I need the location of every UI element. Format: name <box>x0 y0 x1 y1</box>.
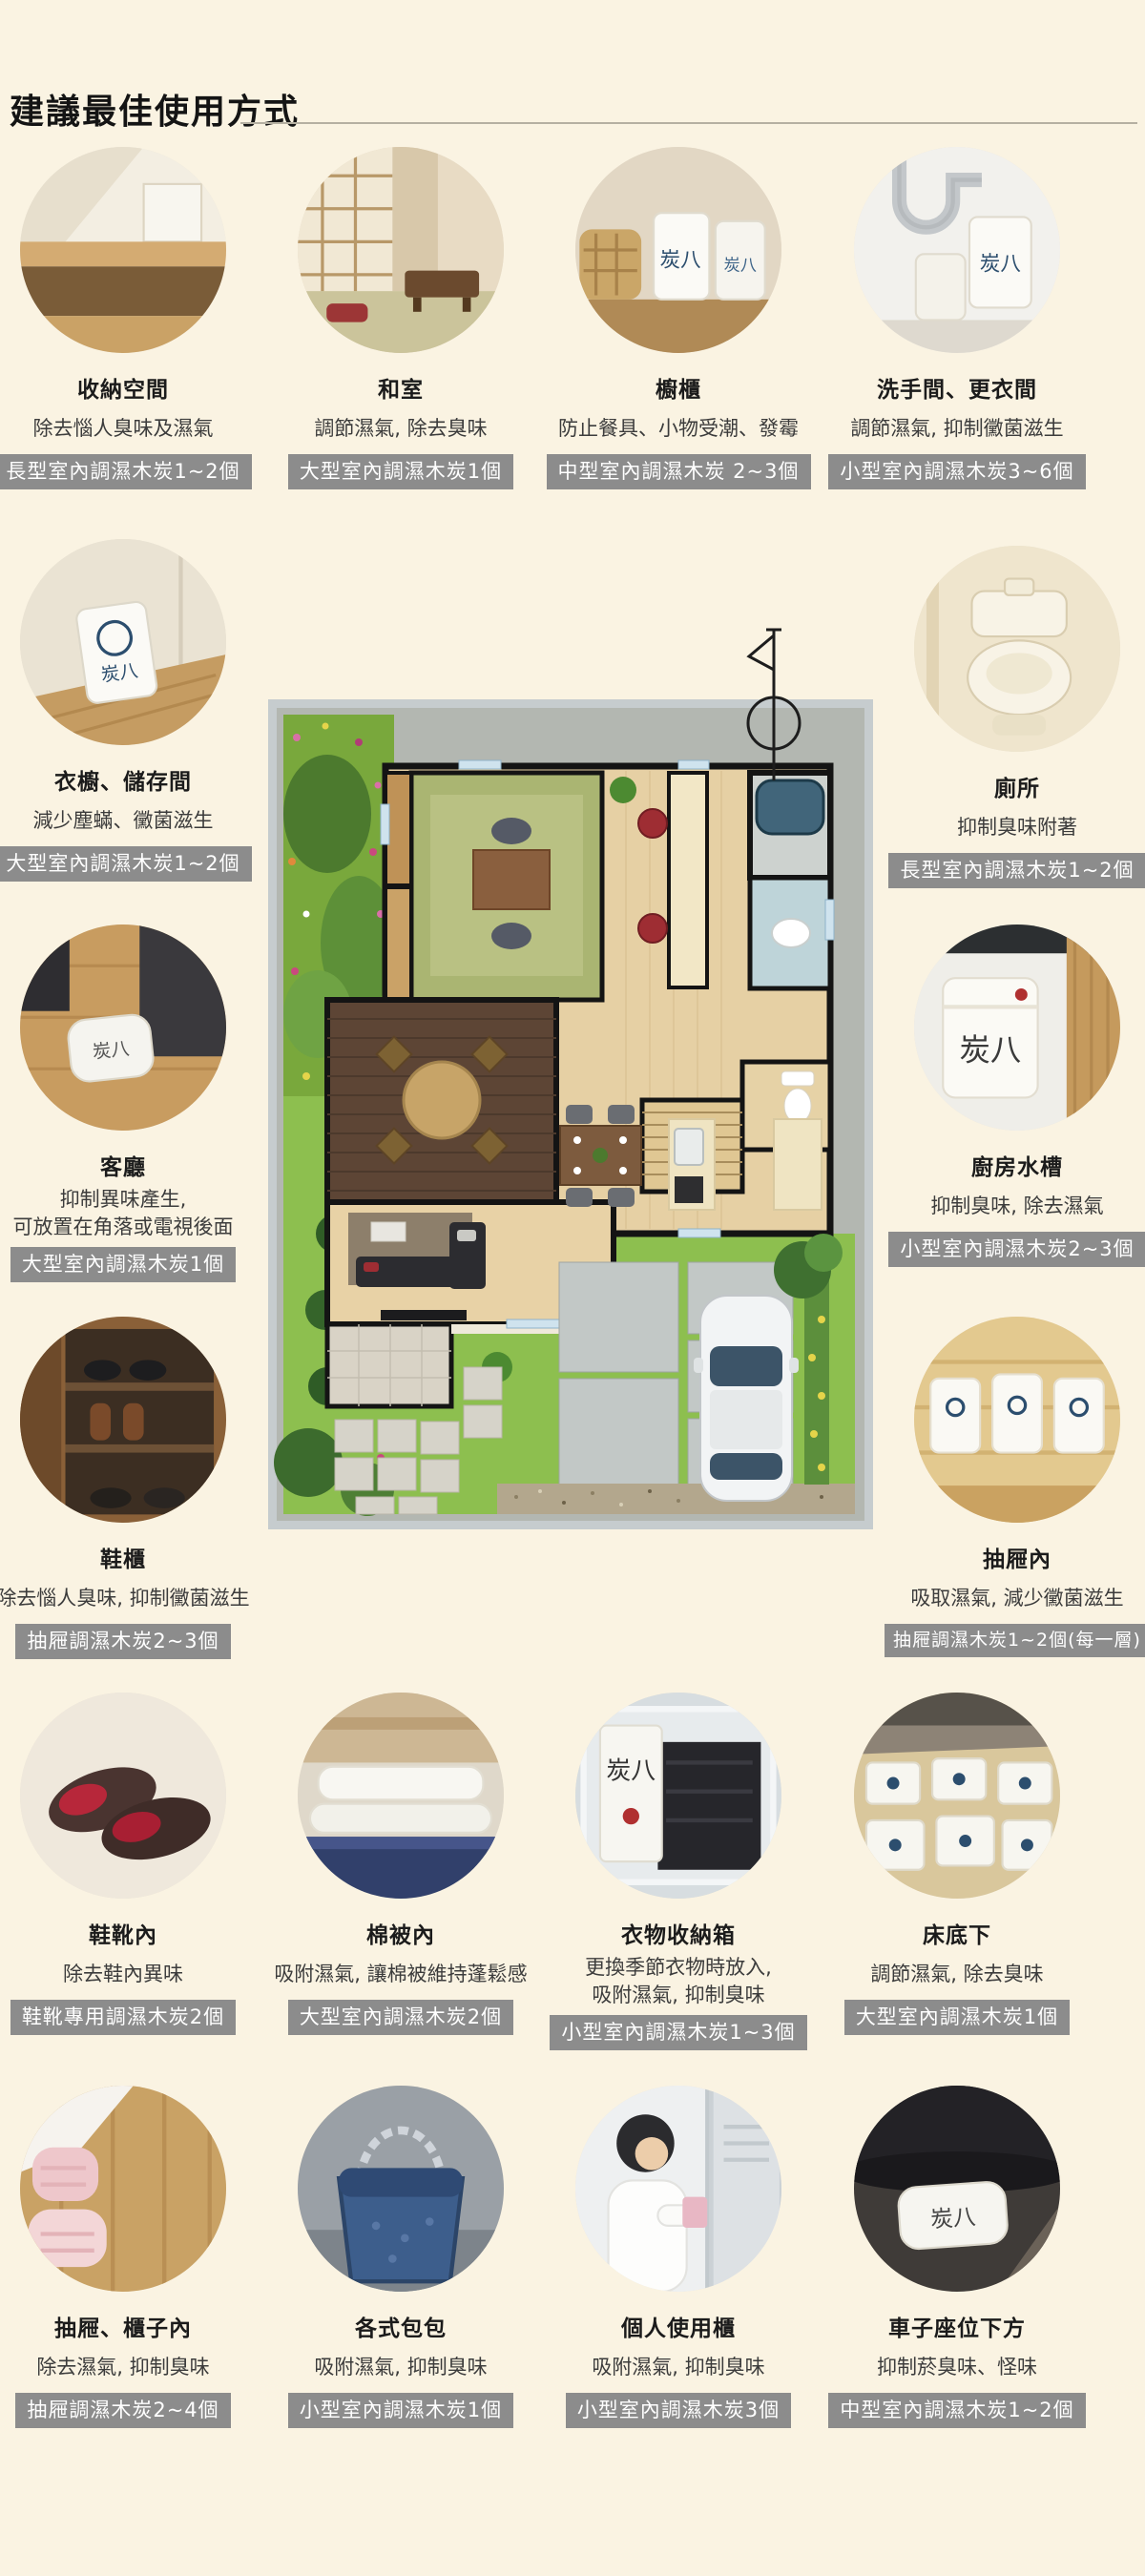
item-badge: 大型室內調濕木炭1個 <box>10 1247 236 1282</box>
charcoal-bag-label: 炭八 <box>606 1757 656 1786</box>
page-title: 建議最佳使用方式 <box>10 84 300 134</box>
item-badge: 小型室內調濕木炭3~6個 <box>828 454 1085 489</box>
item-desc: 調節濕氣, 抑制黴菌滋生 <box>804 414 1110 443</box>
usage-item-living-room: 炭八 客廳 抑制異味產生, 可放置在角落或電視後面 大型室內調濕木炭1個 <box>0 924 276 1282</box>
usage-item-washitsu: 和室 調節濕氣, 除去臭味 大型室內調濕木炭1個 <box>248 147 553 489</box>
charcoal-bag-label: 炭八 <box>660 248 701 272</box>
item-title: 抽屜內 <box>864 1546 1145 1574</box>
wardrobe-bag-illustration: 炭八 <box>20 539 226 745</box>
bags-photo <box>298 2086 504 2292</box>
wardrobe-photo: 炭八 <box>20 539 226 745</box>
cupboard-illustration: 炭八 炭八 <box>575 147 781 353</box>
closet-shelf-illustration <box>20 147 226 353</box>
car-seat-photo: 炭八 <box>854 2086 1060 2292</box>
under-sink-pipes-illustration: 炭八 <box>854 147 1060 353</box>
toilet-illustration <box>914 546 1120 752</box>
usage-item-storage-space: 收納空間 除去惱人臭味及濕氣 長型室內調濕木炭1~2個 <box>0 147 276 489</box>
item-desc: 吸附濕氣, 抑制臭味 <box>248 2353 553 2381</box>
item-badge: 抽屜調濕木炭1~2個(每一層) <box>885 1624 1145 1657</box>
item-title: 鞋靴內 <box>0 1922 276 1950</box>
item-desc: 減少塵蟎、黴菌滋生 <box>0 806 276 835</box>
item-desc: 除去鞋內異味 <box>0 1960 276 1988</box>
item-desc: 抑制菸臭味、怪味 <box>804 2353 1110 2381</box>
usage-item-futon: 棉被內 吸附濕氣, 讓棉被維持蓬鬆感 大型室內調濕木炭2個 <box>248 1693 553 2035</box>
charcoal-bag-label: 炭八 <box>929 2203 977 2233</box>
item-desc: 吸附濕氣, 讓棉被維持蓬鬆感 <box>248 1960 553 1988</box>
item-title: 抽屜、櫃子內 <box>0 2315 276 2343</box>
item-title: 鞋櫃 <box>0 1546 276 1574</box>
toilet-photo <box>914 546 1120 752</box>
item-badge: 中型室內調濕木炭1~2個 <box>828 2393 1085 2428</box>
item-badge: 長型室內調濕木炭1~2個 <box>888 853 1145 888</box>
washitsu-illustration <box>298 147 504 353</box>
usage-item-bags: 各式包包 吸附濕氣, 抑制臭味 小型室內調濕木炭1個 <box>248 2086 553 2428</box>
item-desc: 除去惱人臭味及濕氣 <box>0 414 276 443</box>
car <box>694 1296 799 1501</box>
shoe-cabinet-photo <box>20 1317 226 1523</box>
usage-item-under-bed: 床底下 調節濕氣, 除去臭味 大型室內調濕木炭1個 <box>804 1693 1110 2035</box>
futon-photo <box>298 1693 504 1899</box>
item-desc: 防止餐具、小物受潮、發霉 <box>526 414 831 443</box>
item-desc: 除去濕氣, 抑制臭味 <box>0 2353 276 2381</box>
item-title: 廚房水槽 <box>864 1153 1145 1182</box>
handbag-illustration <box>298 2086 504 2292</box>
item-desc: 除去惱人臭味, 抑制黴菌滋生 <box>0 1584 276 1612</box>
usage-item-kitchen-sink: 炭八 廚房水槽 抑制臭味, 除去濕氣 小型室內調濕木炭2~3個 <box>864 924 1145 1267</box>
item-badge: 大型室內調濕木炭1個 <box>844 2000 1070 2035</box>
item-badge: 大型室內調濕木炭1個 <box>288 454 513 489</box>
usage-item-shoe-cabinet: 鞋櫃 除去惱人臭味, 抑制黴菌滋生 抽屜調濕木炭2~3個 <box>0 1317 276 1659</box>
item-title: 床底下 <box>804 1922 1110 1950</box>
under-bed-bags-illustration <box>854 1693 1060 1899</box>
item-badge: 抽屜調濕木炭2~4個 <box>15 2393 230 2428</box>
usage-item-washroom: 炭八 洗手間、更衣間 調節濕氣, 抑制黴菌滋生 小型室內調濕木炭3~6個 <box>804 147 1110 489</box>
item-badge: 小型室內調濕木炭1個 <box>288 2393 513 2428</box>
cupboard-photo: 炭八 炭八 <box>575 147 781 353</box>
title-divider <box>240 122 1137 124</box>
item-title: 收納空間 <box>0 376 276 405</box>
clothes-box-photo: 炭八 <box>575 1693 781 1899</box>
item-desc: 吸取濕氣, 減少黴菌滋生 <box>864 1584 1145 1612</box>
item-title: 棉被內 <box>248 1922 553 1950</box>
item-desc: 吸附濕氣, 抑制臭味 <box>526 1982 831 2009</box>
item-title: 櫥櫃 <box>526 376 831 405</box>
storage-box-illustration: 炭八 <box>575 1693 781 1899</box>
item-desc: 吸附濕氣, 抑制臭味 <box>526 2353 831 2381</box>
usage-guide-page: 建議最佳使用方式 收納空間 除去惱人臭味及濕氣 長型室內調濕木炭1~2個 <box>0 0 1145 2576</box>
shoes-photo <box>20 1693 226 1899</box>
item-desc: 調節濕氣, 除去臭味 <box>248 414 553 443</box>
usage-item-shoes: 鞋靴內 除去鞋內異味 鞋靴專用調濕木炭2個 <box>0 1693 276 2035</box>
item-desc: 抑制異味產生, <box>0 1186 276 1214</box>
item-title: 衣櫥、儲存間 <box>0 768 276 797</box>
living-corner-illustration: 炭八 <box>20 924 226 1131</box>
item-title: 各式包包 <box>248 2315 553 2343</box>
item-desc: 更換季節衣物時放入, <box>526 1954 831 1982</box>
drawer-photo <box>914 1317 1120 1523</box>
item-desc: 調節濕氣, 除去臭味 <box>804 1960 1110 1988</box>
item-title: 個人使用櫃 <box>526 2315 831 2343</box>
storage-space-photo <box>20 147 226 353</box>
item-badge: 大型室內調濕木炭2個 <box>288 2000 513 2035</box>
item-title: 洗手間、更衣間 <box>804 376 1110 405</box>
usage-item-drawer-cabinet: 抽屜、櫃子內 除去濕氣, 抑制臭味 抽屜調濕木炭2~4個 <box>0 2086 276 2428</box>
pink-clothes-drawer-illustration <box>20 2086 226 2292</box>
item-badge: 長型室內調濕木炭1~2個 <box>0 454 252 489</box>
charcoal-bag-label: 炭八 <box>92 1037 131 1063</box>
under-sink-bag-illustration: 炭八 <box>914 924 1120 1131</box>
item-title: 車子座位下方 <box>804 2315 1110 2343</box>
charcoal-bag-label: 炭八 <box>724 257 758 276</box>
usage-item-locker: 個人使用櫃 吸附濕氣, 抑制臭味 小型室內調濕木炭3個 <box>526 2086 831 2428</box>
item-badge: 小型室內調濕木炭2~3個 <box>888 1232 1145 1267</box>
usage-item-clothes-box: 炭八 衣物收納箱 更換季節衣物時放入, 吸附濕氣, 抑制臭味 小型室內調濕木炭1… <box>526 1693 831 2050</box>
washitsu-photo <box>298 147 504 353</box>
usage-item-toilet: 廁所 抑制臭味附著 長型室內調濕木炭1~2個 <box>864 546 1145 888</box>
item-desc: 抑制臭味附著 <box>864 813 1145 841</box>
item-badge: 大型室內調濕木炭1~2個 <box>0 846 252 882</box>
usage-item-wardrobe: 炭八 衣櫥、儲存間 減少塵蟎、黴菌滋生 大型室內調濕木炭1~2個 <box>0 539 276 882</box>
under-car-seat-illustration: 炭八 <box>854 2086 1060 2292</box>
usage-item-cupboard: 炭八 炭八 櫥櫃 防止餐具、小物受潮、發霉 中型室內調濕木炭 2~3個 <box>526 147 831 489</box>
charcoal-bag-label: 炭八 <box>980 253 1021 277</box>
locker-photo <box>575 2086 781 2292</box>
kitchen-sink-photo: 炭八 <box>914 924 1120 1131</box>
usage-item-drawer: 抽屜內 吸取濕氣, 減少黴菌滋生 抽屜調濕木炭1~2個(每一層) <box>864 1317 1145 1657</box>
item-title: 和室 <box>248 376 553 405</box>
charcoal-bag-label: 炭八 <box>960 1032 1022 1069</box>
item-title: 客廳 <box>0 1153 276 1182</box>
futon-layers-illustration <box>298 1693 504 1899</box>
washroom-photo: 炭八 <box>854 147 1060 353</box>
weather-vane-icon <box>738 628 806 785</box>
floor-plan <box>268 699 873 1529</box>
item-title: 廁所 <box>864 775 1145 803</box>
item-badge: 鞋靴專用調濕木炭2個 <box>10 2000 236 2035</box>
usage-item-car-seat: 炭八 車子座位下方 抑制菸臭味、怪味 中型室內調濕木炭1~2個 <box>804 2086 1110 2428</box>
floor-plan-illustration <box>268 699 873 1529</box>
living-room-photo: 炭八 <box>20 924 226 1131</box>
personal-locker-illustration <box>575 2086 781 2292</box>
item-desc: 可放置在角落或電視後面 <box>0 1214 276 1241</box>
item-badge: 抽屜調濕木炭2~3個 <box>15 1624 230 1659</box>
item-desc: 抑制臭味, 除去濕氣 <box>864 1192 1145 1220</box>
drawer-cabinet-photo <box>20 2086 226 2292</box>
item-badge: 小型室內調濕木炭1~3個 <box>550 2015 806 2050</box>
item-title: 衣物收納箱 <box>526 1922 831 1950</box>
item-badge: 小型室內調濕木炭3個 <box>566 2393 791 2428</box>
under-bed-photo <box>854 1693 1060 1899</box>
item-badge: 中型室內調濕木炭 2~3個 <box>547 454 811 489</box>
loafers-illustration <box>20 1693 226 1899</box>
shoe-cabinet-illustration <box>20 1317 226 1523</box>
drawer-bags-illustration <box>914 1317 1120 1523</box>
